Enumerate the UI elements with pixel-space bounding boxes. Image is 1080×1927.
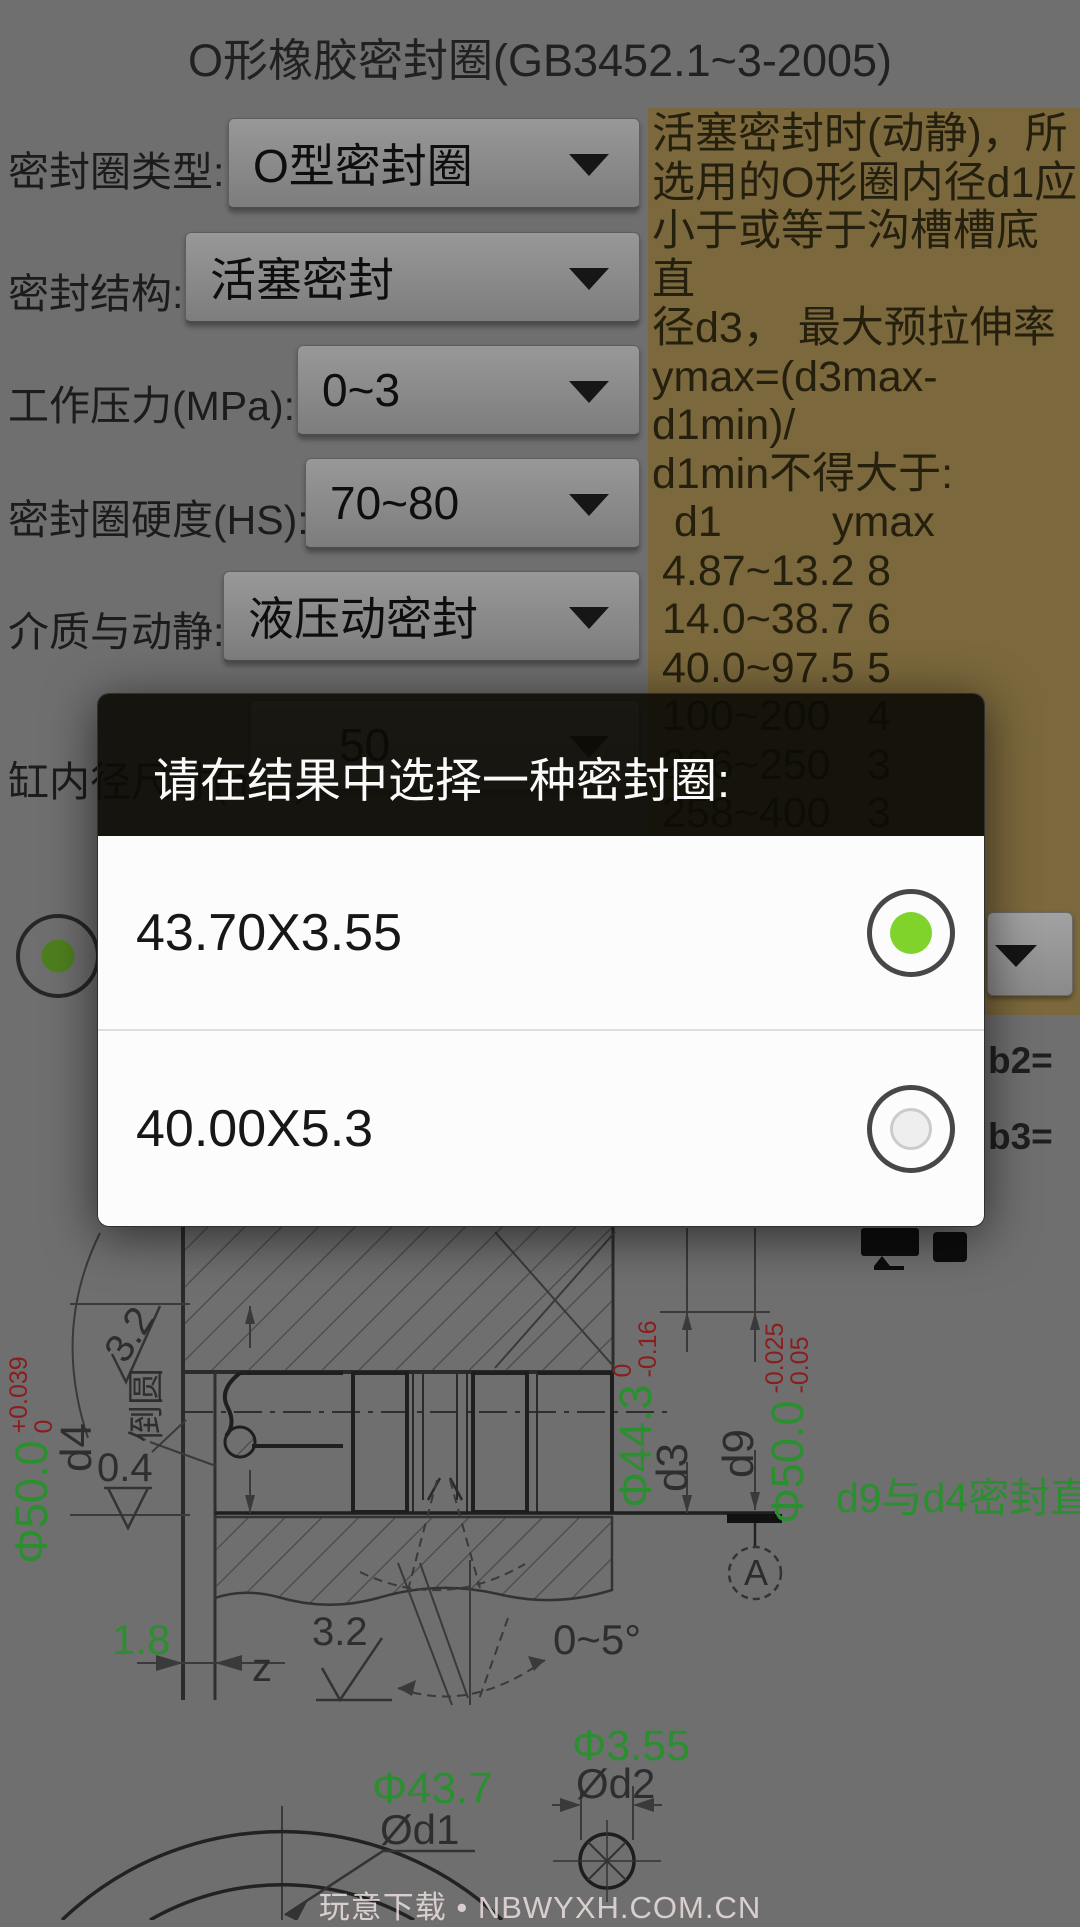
radio-unselected-icon[interactable]: [867, 1085, 955, 1173]
pressure-spinner[interactable]: 0~3: [297, 345, 640, 437]
structure-value: 活塞密封: [210, 244, 394, 310]
field-label-medium: 介质与动静:: [8, 598, 224, 658]
result-spinner[interactable]: [987, 912, 1073, 996]
watermark: 玩意下载 • NBWYXH.COM.CN: [0, 1882, 1080, 1927]
seal-type-value: O型密封圈: [253, 130, 473, 196]
info-line: d1min不得大于:: [652, 450, 1080, 499]
field-label-structure: 密封结构:: [8, 260, 183, 320]
stretch-table-header: d1 ymax: [652, 498, 1080, 547]
dialog-body: 43.70X3.55 40.00X5.3: [98, 836, 984, 1226]
table-row: 14.0~38.76: [652, 595, 1080, 644]
chevron-down-icon: [569, 154, 609, 176]
datum-a-label: A: [736, 1552, 776, 1594]
info-line: ymax=(d3max-d1min)/: [652, 353, 1080, 450]
seal-diameter-note: d9与d4密封直径: [836, 1464, 1080, 1524]
groove-depth-label: 1.8: [112, 1616, 170, 1664]
dialog-option-2[interactable]: 40.00X5.3: [98, 1031, 984, 1226]
chevron-down-icon: [569, 494, 609, 516]
groove-b3-label: b3=: [978, 1116, 1053, 1158]
surface-finish-bottom: 3.2: [312, 1610, 368, 1655]
screenshot-tool-icon: [861, 1228, 967, 1268]
seal-type-spinner[interactable]: O型密封圈: [228, 118, 640, 210]
dialog-header: 请在结果中选择一种密封圈:: [98, 694, 984, 836]
info-line: 选用的O形圈内径d1应: [652, 159, 1080, 208]
info-line: 径d3， 最大预拉伸率: [652, 304, 1080, 353]
angle-label: 0~5°: [553, 1616, 641, 1664]
pressure-value: 0~3: [322, 363, 400, 417]
chevron-down-icon: [995, 945, 1037, 967]
groove-b2-label: b2=: [978, 1040, 1053, 1082]
fillet-label: 倒圆: [116, 1368, 170, 1442]
medium-value: 液压动密封: [248, 583, 478, 649]
chevron-down-icon: [569, 381, 609, 403]
chevron-down-icon: [569, 268, 609, 290]
medium-spinner[interactable]: 液压动密封: [223, 571, 640, 663]
field-label-pressure: 工作压力(MPa):: [8, 372, 295, 432]
dim-d4-name: d4: [52, 1423, 102, 1472]
structure-spinner[interactable]: 活塞密封: [185, 232, 640, 324]
info-line: 小于或等于沟槽槽底直: [652, 207, 1080, 304]
dim-d4-diameter: Φ50.0 +0.0390: [6, 1356, 58, 1564]
hardness-spinner[interactable]: 70~80: [305, 458, 640, 550]
hardness-value: 70~80: [330, 476, 459, 530]
dim-d9-name: d9: [714, 1429, 764, 1478]
table-row: 4.87~13.28: [652, 547, 1080, 596]
dim-d3-name: d3: [648, 1443, 698, 1492]
dim-d9-diameter: Φ50.0 -0.025-0.05: [762, 1323, 814, 1524]
dialog-option-1[interactable]: 43.70X3.55: [98, 836, 984, 1029]
dim-d1-name: Ød1: [380, 1806, 459, 1854]
table-row: 40.0~97.55: [652, 644, 1080, 693]
field-label-seal-type: 密封圈类型:: [8, 138, 224, 198]
page-title: O形橡胶密封圈(GB3452.1~3-2005): [0, 24, 1080, 89]
dialog-title: 请在结果中选择一种密封圈:: [153, 742, 730, 811]
radio-dot: [42, 940, 75, 973]
selection-dialog: 请在结果中选择一种密封圈: 43.70X3.55 40.00X5.3: [97, 693, 985, 1227]
field-label-hardness: 密封圈硬度(HS):: [8, 486, 309, 546]
radio-selected-icon[interactable]: [867, 889, 955, 977]
chevron-down-icon: [569, 607, 609, 629]
z-dimension-label: z: [252, 1646, 272, 1691]
background-result-radio[interactable]: [16, 914, 100, 998]
dim-d2-name: Ød2: [576, 1760, 655, 1808]
technical-drawing: [0, 1225, 1080, 1920]
surface-finish-left: 0.4: [97, 1446, 153, 1491]
info-line: 活塞密封时(动静)，所: [652, 110, 1080, 159]
